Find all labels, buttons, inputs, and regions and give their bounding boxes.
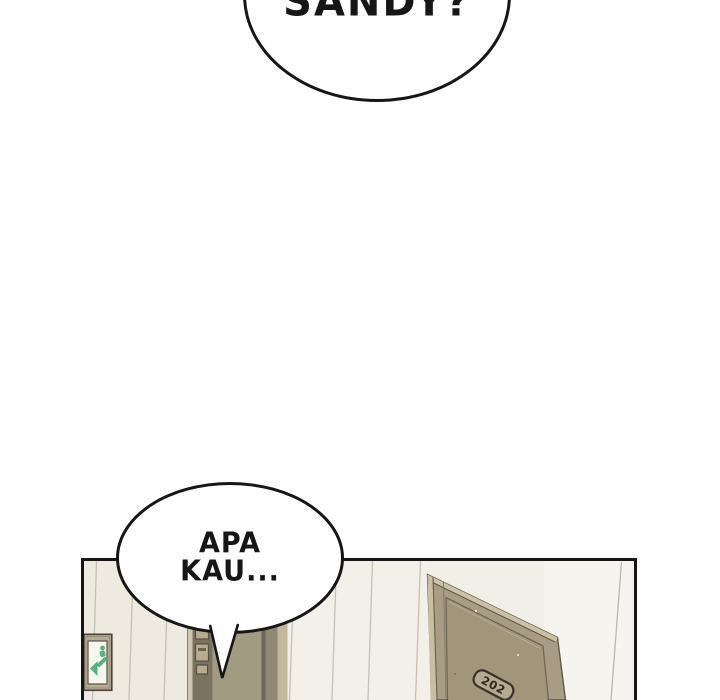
door-speck <box>454 673 456 675</box>
door-speck <box>475 610 477 612</box>
top-speech-bubble: SANDY? <box>243 0 511 102</box>
bubble-tail <box>202 619 246 683</box>
bottom-speech-bubble: APA KAU... <box>116 482 344 634</box>
exit-sign-icon <box>84 634 112 690</box>
comic-page: 202 SANDY? APA KAU... <box>0 0 720 700</box>
running-man-head <box>100 646 105 651</box>
door-speck <box>517 654 519 656</box>
bubble-text-line2: KAU... <box>180 557 280 586</box>
top-bubble-text: SANDY? <box>246 0 508 26</box>
